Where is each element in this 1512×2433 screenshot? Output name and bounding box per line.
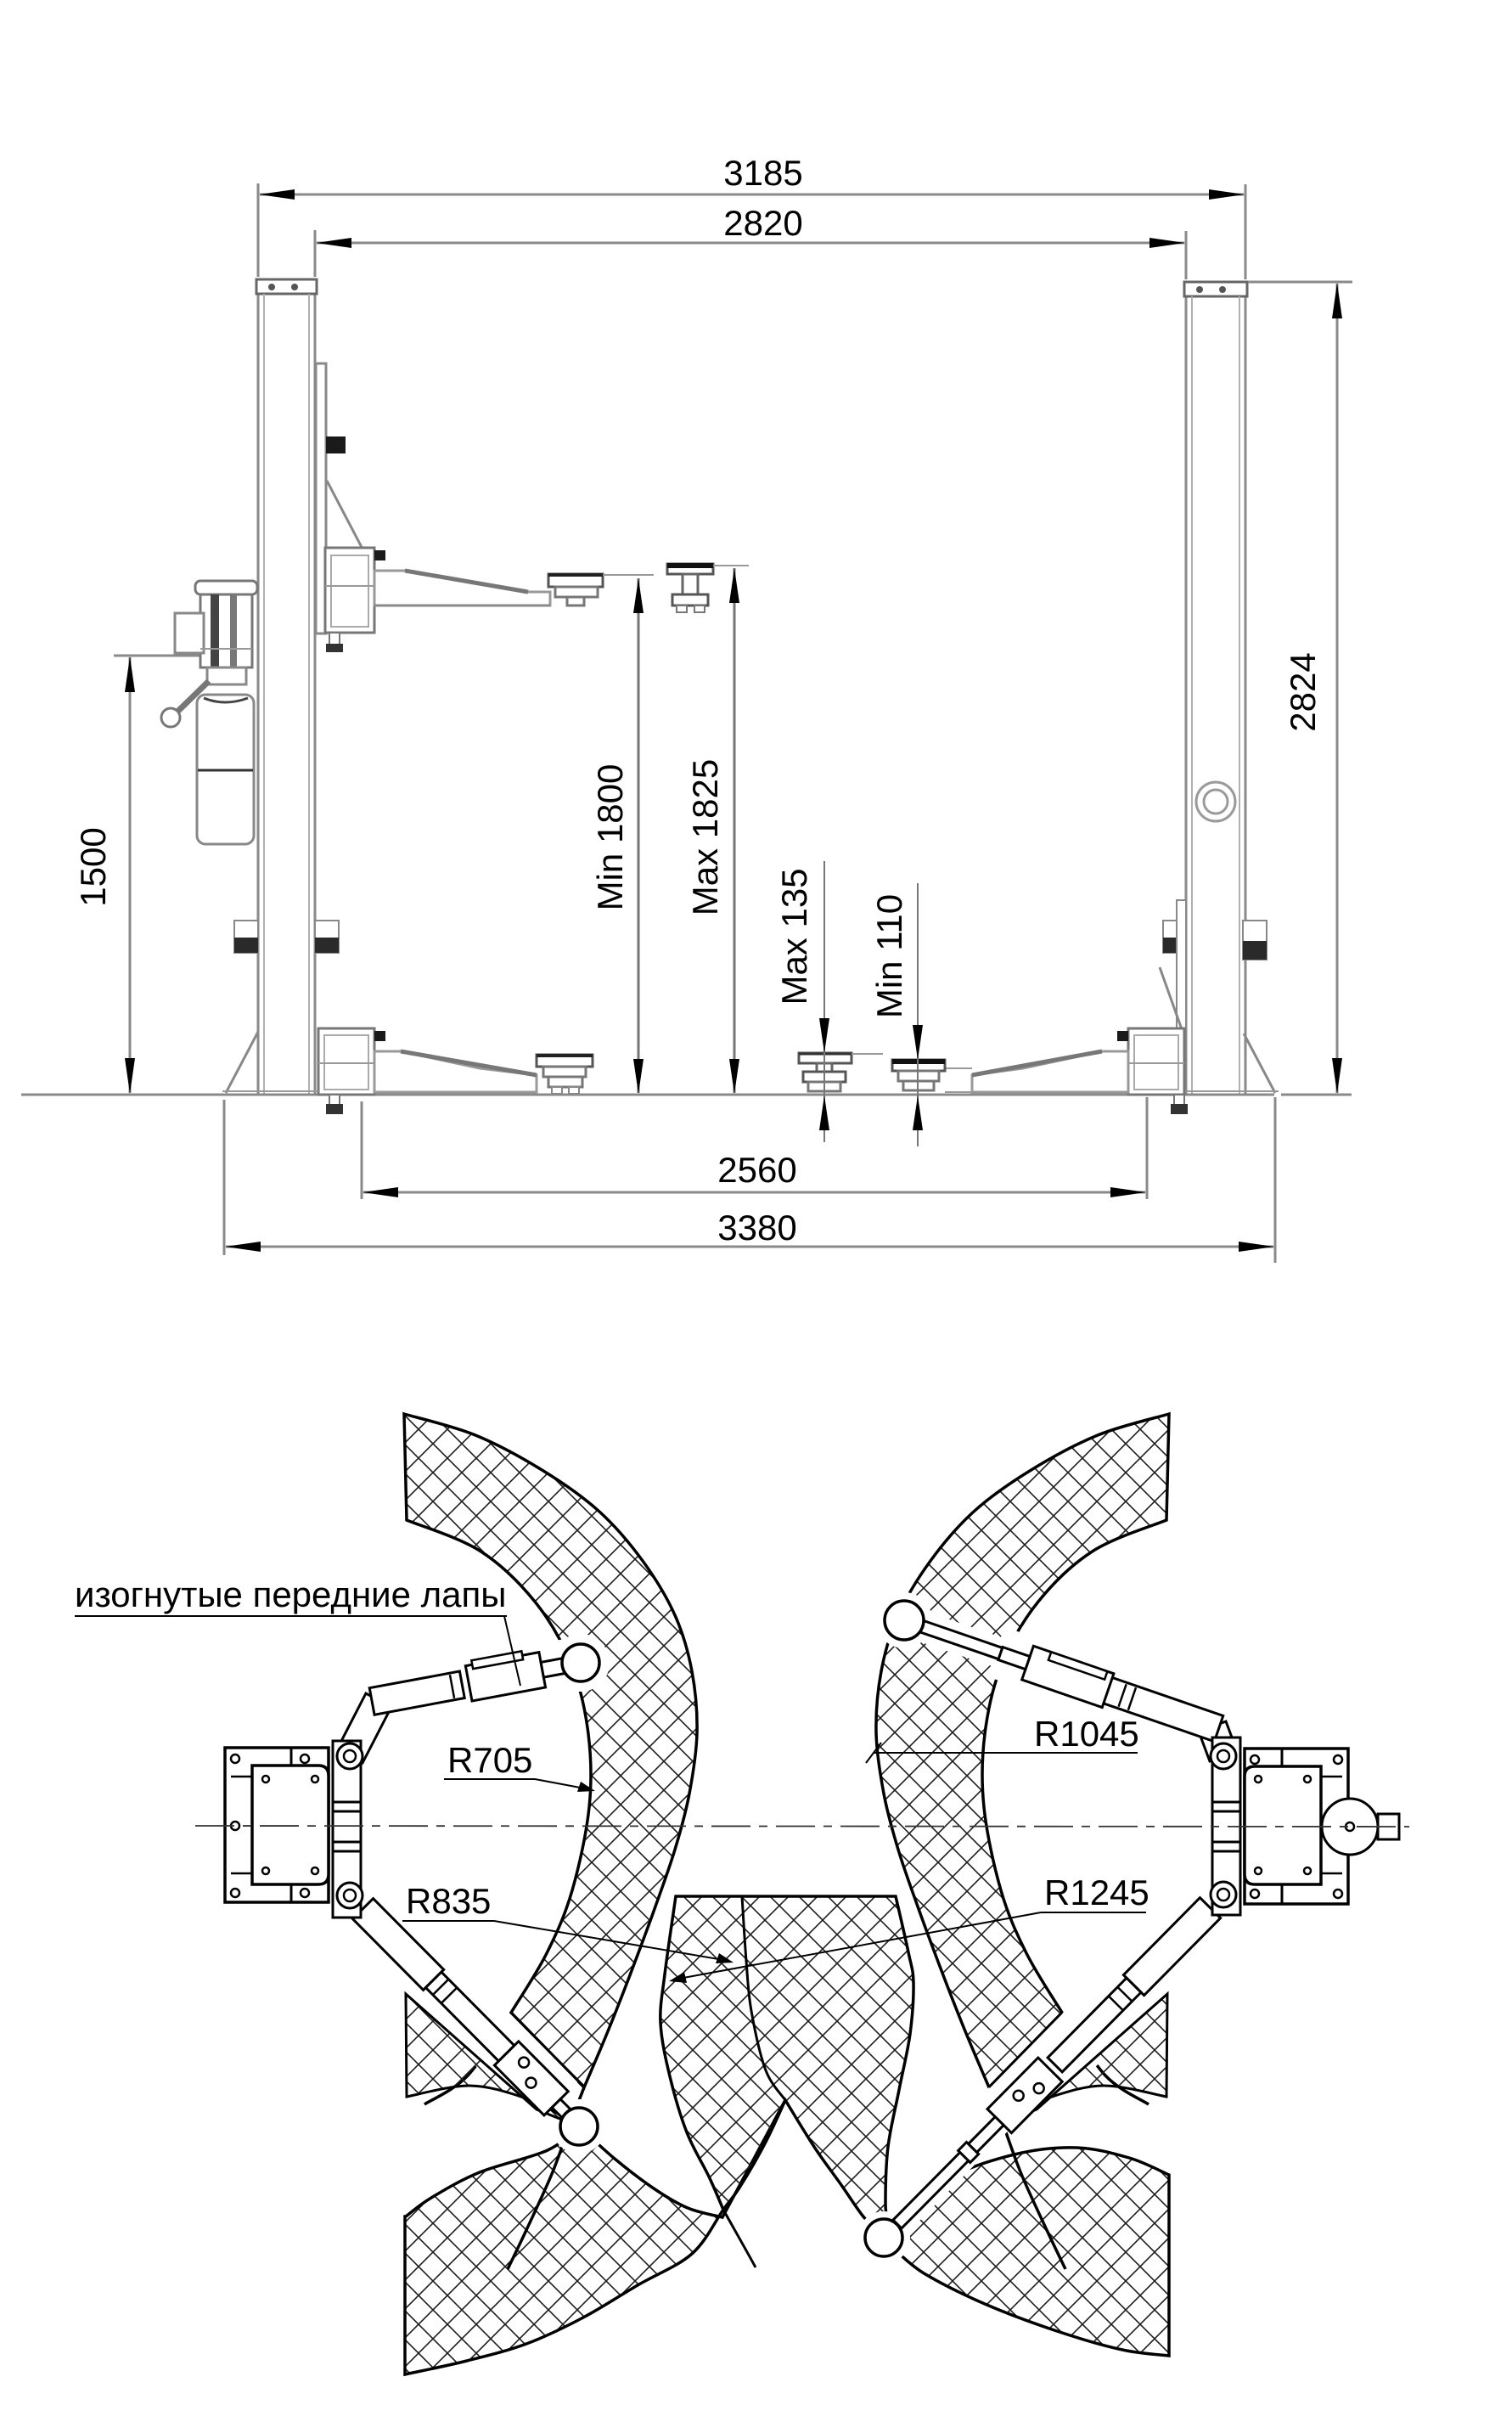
svg-text:2560: 2560 xyxy=(717,1150,796,1190)
svg-text:1500: 1500 xyxy=(73,827,113,906)
svg-text:2824: 2824 xyxy=(1283,652,1323,731)
svg-text:3380: 3380 xyxy=(717,1208,796,1247)
svg-text:Min 1800: Min 1800 xyxy=(590,764,630,911)
svg-text:Max 1825: Max 1825 xyxy=(685,759,725,915)
svg-text:R705: R705 xyxy=(447,1740,532,1780)
svg-text:R1045: R1045 xyxy=(1034,1714,1139,1754)
svg-text:3185: 3185 xyxy=(723,153,802,193)
svg-text:2820: 2820 xyxy=(723,203,802,243)
svg-text:Min 110: Min 110 xyxy=(869,894,909,1018)
svg-text:изогнутые передние лапы: изогнутые передние лапы xyxy=(75,1574,506,1614)
svg-text:R1245: R1245 xyxy=(1044,1873,1149,1912)
svg-text:Max 135: Max 135 xyxy=(774,868,814,1005)
svg-text:R835: R835 xyxy=(406,1881,491,1921)
